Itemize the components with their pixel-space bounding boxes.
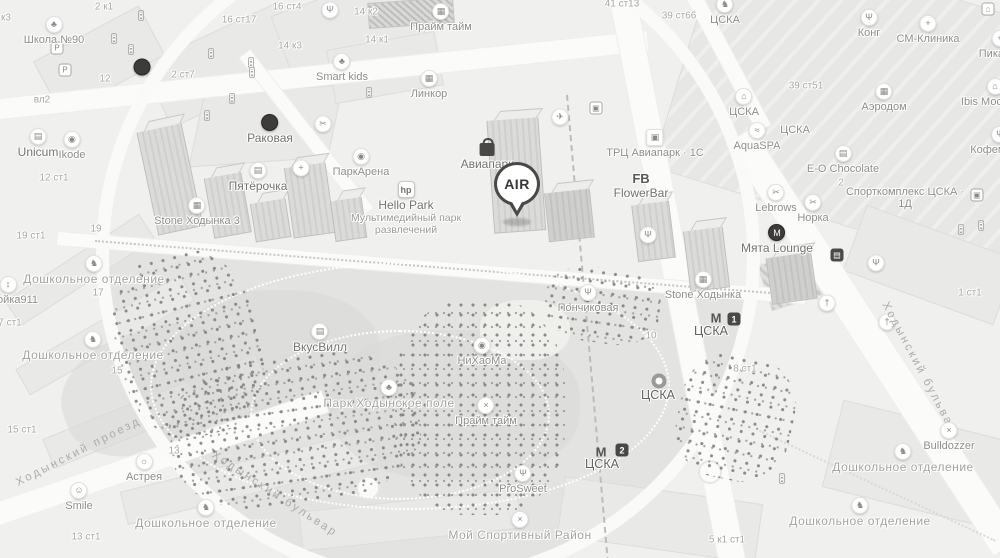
medical-cross-icon: + bbox=[992, 30, 1000, 47]
map-canvas[interactable]: Р Р ▣ ⌂ ▣ ▤ Ψ Ψ Ψ ✂ + † † ✈ ♣Школа №90 ▦… bbox=[0, 0, 1000, 558]
dark-logo-icon[interactable] bbox=[134, 59, 151, 76]
medical-cross-icon[interactable]: + bbox=[293, 160, 310, 177]
pin-tail-inner bbox=[511, 200, 523, 211]
building-number: 15 ст1 bbox=[7, 425, 36, 436]
traffic-light-icon bbox=[111, 33, 117, 44]
building-number: 41 ст13 bbox=[605, 0, 640, 10]
cart-icon: ▤ bbox=[249, 162, 266, 179]
scissors-icon[interactable]: ✂ bbox=[315, 116, 332, 133]
sport-icon: × bbox=[512, 511, 529, 528]
building-number: 8 ст1 bbox=[733, 364, 756, 375]
church-icon[interactable]: † bbox=[819, 295, 836, 312]
rocking-horse-icon: ♞ bbox=[851, 497, 868, 514]
dark-logo-icon bbox=[262, 114, 279, 131]
rocking-horse-icon: ♞ bbox=[894, 443, 911, 460]
traffic-light-icon bbox=[249, 67, 255, 78]
traffic-light-icon bbox=[204, 110, 210, 121]
poi-doshkolnoe-1[interactable]: ♞Дошкольное отделение bbox=[23, 255, 164, 285]
tools-icon: × bbox=[478, 397, 495, 414]
building-number: 15 bbox=[111, 366, 122, 377]
smile-icon: ☺ bbox=[70, 482, 87, 499]
hotel-icon: ⌂ bbox=[735, 88, 752, 105]
poi-stroyka911[interactable]: ↕Стройка911 bbox=[0, 276, 38, 306]
myata-logo-icon: M bbox=[769, 224, 786, 241]
poi-sportkompleks-cska[interactable]: Спорткомплекс ЦСКА · 1Д bbox=[840, 186, 970, 210]
metro-station-cska-label[interactable]: ЦСКА bbox=[585, 457, 619, 471]
poi-prime-time[interactable]: ▦Прайм тайм bbox=[410, 3, 472, 33]
poi-picasso[interactable]: +Пикассо bbox=[979, 30, 1000, 60]
building-number: 2 ст7 bbox=[171, 70, 194, 81]
dot-icon: ◉ bbox=[473, 337, 490, 354]
building-number: 16 ст17 bbox=[222, 15, 257, 26]
poi-trc-aviapark[interactable]: ▣ТРЦ Авиапарк · 1С bbox=[606, 129, 704, 159]
poi-stone-khodynka[interactable]: ▦Stone Ходынка bbox=[665, 271, 741, 301]
poi-doshkolnoe-2[interactable]: ♞Дошкольное отделение bbox=[22, 331, 163, 361]
tree-icon: ♣ bbox=[381, 379, 398, 396]
poi-sublabel: Мультимедийный парк развлечений bbox=[347, 212, 465, 236]
poi-smart-kids[interactable]: ♣Smart kids bbox=[316, 53, 368, 83]
poi-cska-label[interactable]: ЦСКА bbox=[780, 124, 810, 136]
poi-prosweet[interactable]: ΨProSweet bbox=[499, 465, 547, 495]
mall-sign-icon: ▣ bbox=[646, 129, 663, 146]
tree-icon: ♣ bbox=[334, 53, 351, 70]
building-number: 39 ст51 bbox=[789, 81, 824, 92]
flower-icon: ☼ bbox=[135, 453, 152, 470]
cafe-icon: Ψ bbox=[514, 465, 531, 482]
traffic-light-icon bbox=[208, 48, 214, 59]
building-number: 12 ст1 bbox=[39, 173, 68, 184]
poi-nihaoma[interactable]: ◉НиХаоМа bbox=[457, 337, 506, 367]
building-number: вл2 bbox=[34, 95, 50, 106]
dot-icon: ◉ bbox=[63, 131, 80, 148]
poi-label: Школа №90 bbox=[24, 34, 85, 46]
hp-badge-icon: hp bbox=[398, 181, 415, 198]
mall-sign-icon[interactable]: ▣ bbox=[971, 189, 984, 202]
poi-doshkolnoe-5[interactable]: ♞Дошкольное отделение bbox=[135, 499, 276, 529]
building-number: 2 к1 bbox=[95, 2, 113, 13]
poi-sm-klinika[interactable]: +СМ-Клиника bbox=[896, 15, 959, 45]
poi-cska-hotel[interactable]: ⌂ЦСКА bbox=[729, 88, 759, 118]
building-number: 13 ст1 bbox=[71, 532, 100, 543]
poi-flowerbar[interactable]: FBFlowerBar bbox=[614, 171, 669, 199]
poi-cska-club[interactable]: ♞ЦСКА bbox=[710, 0, 740, 26]
rocking-horse-icon: ♞ bbox=[84, 331, 101, 348]
building-number: 17 bbox=[92, 288, 103, 299]
building-number: 16 ст4 bbox=[272, 2, 301, 13]
building-icon: ▦ bbox=[433, 3, 450, 20]
poi-parkarena[interactable]: ◉ПаркАрена bbox=[333, 148, 390, 178]
airplane-icon[interactable]: ✈ bbox=[552, 109, 569, 126]
folder-badge-icon[interactable]: ▤ bbox=[831, 249, 844, 262]
poi-ponchikovaya[interactable]: ΨПончиковая bbox=[558, 284, 619, 314]
traffic-light-icon bbox=[128, 44, 134, 55]
building-number: 19 ст1 bbox=[16, 231, 45, 242]
rocking-horse-icon: ♞ bbox=[85, 255, 102, 272]
poi-lebrows[interactable]: ✂Lebrows bbox=[755, 184, 797, 214]
shopping-bag-icon bbox=[479, 143, 494, 156]
restaurant-icon: Ψ bbox=[992, 126, 1000, 143]
traffic-light-icon bbox=[229, 93, 235, 104]
tower-building bbox=[630, 192, 676, 262]
poi-stone-khodynka-3[interactable]: ▦Stone Ходынка 3 bbox=[154, 197, 240, 227]
poi-shkola-90[interactable]: ♣Школа №90 bbox=[24, 16, 85, 46]
poi-kofemaniya[interactable]: ΨКофемания bbox=[970, 126, 1000, 156]
poi-kong[interactable]: ΨКонг bbox=[858, 9, 881, 39]
cart-icon: ▤ bbox=[312, 323, 329, 340]
poi-pyaterochka[interactable]: ▤Пятёрочка bbox=[229, 162, 288, 192]
poi-eo-chocolate[interactable]: ▤E-O Chocolate bbox=[807, 145, 879, 175]
building-icon: ▦ bbox=[695, 271, 712, 288]
tools-icon: × bbox=[940, 422, 957, 439]
fb-logo: FB bbox=[632, 171, 649, 186]
mall-sign-icon[interactable]: ▣ bbox=[590, 102, 603, 115]
home-sign-icon[interactable]: ⌂ bbox=[982, 3, 995, 16]
arena-icon: ◉ bbox=[353, 148, 370, 165]
basket-icon: ▤ bbox=[30, 128, 47, 145]
restaurant-icon[interactable]: Ψ bbox=[640, 227, 657, 244]
traffic-light-icon bbox=[138, 10, 144, 21]
building-number: 12 bbox=[99, 74, 110, 85]
building-number: 5 к1 ст1 bbox=[709, 535, 745, 546]
hotel-icon: ⌂ bbox=[986, 78, 1000, 95]
scissors-icon: ✂ bbox=[767, 184, 784, 201]
tree-icon: ♣ bbox=[46, 16, 63, 33]
pin-shadow bbox=[503, 218, 531, 226]
tower-building bbox=[543, 180, 595, 242]
basket-icon: ▤ bbox=[835, 145, 852, 162]
poi-doshkolnoe-4[interactable]: ♞Дошкольное отделение bbox=[789, 497, 930, 527]
poi-myata-lounge[interactable]: MМята Lounge bbox=[741, 224, 813, 254]
poi-hello-park[interactable]: hpHello ParkМультимедийный парк развлече… bbox=[347, 181, 465, 236]
building-number: 19 bbox=[90, 224, 101, 235]
metro-station-cska-label[interactable]: ЦСКА bbox=[694, 324, 728, 338]
poi-rakovaya[interactable]: Раковая bbox=[247, 114, 293, 144]
poi-smile[interactable]: ☺Smile bbox=[65, 482, 93, 512]
building-number: 10 bbox=[645, 331, 656, 342]
building-icon: ▦ bbox=[875, 83, 892, 100]
building-number: 39 ст66 bbox=[662, 11, 697, 22]
poi-aerodom[interactable]: ▦Аэродом bbox=[861, 83, 906, 113]
metro-exit-1-badge[interactable]: 1 bbox=[728, 313, 741, 326]
metro-exit-2-badge[interactable]: 2 bbox=[616, 444, 629, 457]
poi-aquaspa[interactable]: ≈AquaSPA bbox=[734, 122, 781, 152]
poi-linkor[interactable]: ▦Линкор bbox=[411, 70, 448, 100]
spa-icon: ≈ bbox=[748, 122, 765, 139]
poi-ikode[interactable]: ◉Ikode bbox=[59, 131, 86, 161]
restaurant-icon: Ψ bbox=[861, 9, 878, 26]
metro-station-ring-icon[interactable] bbox=[652, 374, 667, 389]
poi-unicum[interactable]: ▤Unicum bbox=[18, 128, 59, 158]
poi-norka[interactable]: ✂Норка bbox=[797, 194, 828, 224]
traffic-light-icon bbox=[958, 224, 964, 235]
air-pin-marker[interactable]: AIR bbox=[494, 162, 540, 206]
traffic-light-icon bbox=[366, 87, 372, 98]
poi-doshkolnoe-3[interactable]: ♞Дошкольное отделение bbox=[832, 443, 973, 473]
building-icon: ▦ bbox=[188, 197, 205, 214]
poi-vkusvill[interactable]: ▤ВкусВилл bbox=[293, 323, 347, 353]
building-number: к3 bbox=[1, 13, 11, 24]
shop-icon: ↕ bbox=[0, 276, 16, 293]
building-icon: ▦ bbox=[420, 70, 437, 87]
building-number: 14 к1 bbox=[365, 35, 389, 46]
poi-khodynskoe-pole-park[interactable]: ♣Парк Ходынское поле bbox=[323, 379, 454, 409]
scissors-icon: ✂ bbox=[804, 194, 821, 211]
traffic-light-icon bbox=[978, 220, 984, 231]
parking-sign-icon[interactable]: Р bbox=[59, 64, 72, 77]
traffic-light-icon bbox=[779, 473, 785, 484]
restaurant-icon[interactable]: Ψ bbox=[868, 255, 885, 272]
building-number: 7 ст1 bbox=[0, 318, 22, 329]
pin-label: AIR bbox=[504, 176, 530, 192]
poi-prime-time-south[interactable]: ×Прайм тайм bbox=[455, 397, 517, 427]
tower-building bbox=[248, 189, 291, 242]
rocking-horse-icon: ♞ bbox=[197, 499, 214, 516]
restaurant-icon[interactable]: Ψ bbox=[322, 2, 339, 19]
medical-cross-icon: + bbox=[919, 15, 936, 32]
poi-astreya[interactable]: ☼Астрея bbox=[126, 453, 162, 483]
poi-ibis[interactable]: ⌂Ibis Москва Д bbox=[961, 78, 1000, 108]
building-number: 14 к3 bbox=[278, 41, 302, 52]
poi-moy-sportivny-rayon[interactable]: ×Мой Спортивный Район bbox=[448, 511, 591, 541]
building-number: 13 bbox=[168, 446, 179, 457]
building-number: 14 к2 bbox=[354, 7, 378, 18]
building-number: 1 ст1 bbox=[958, 288, 981, 299]
restaurant-icon: Ψ bbox=[579, 284, 596, 301]
metro-station-cska-label[interactable]: ЦСКА bbox=[641, 388, 675, 402]
club-icon: ♞ bbox=[716, 0, 733, 13]
